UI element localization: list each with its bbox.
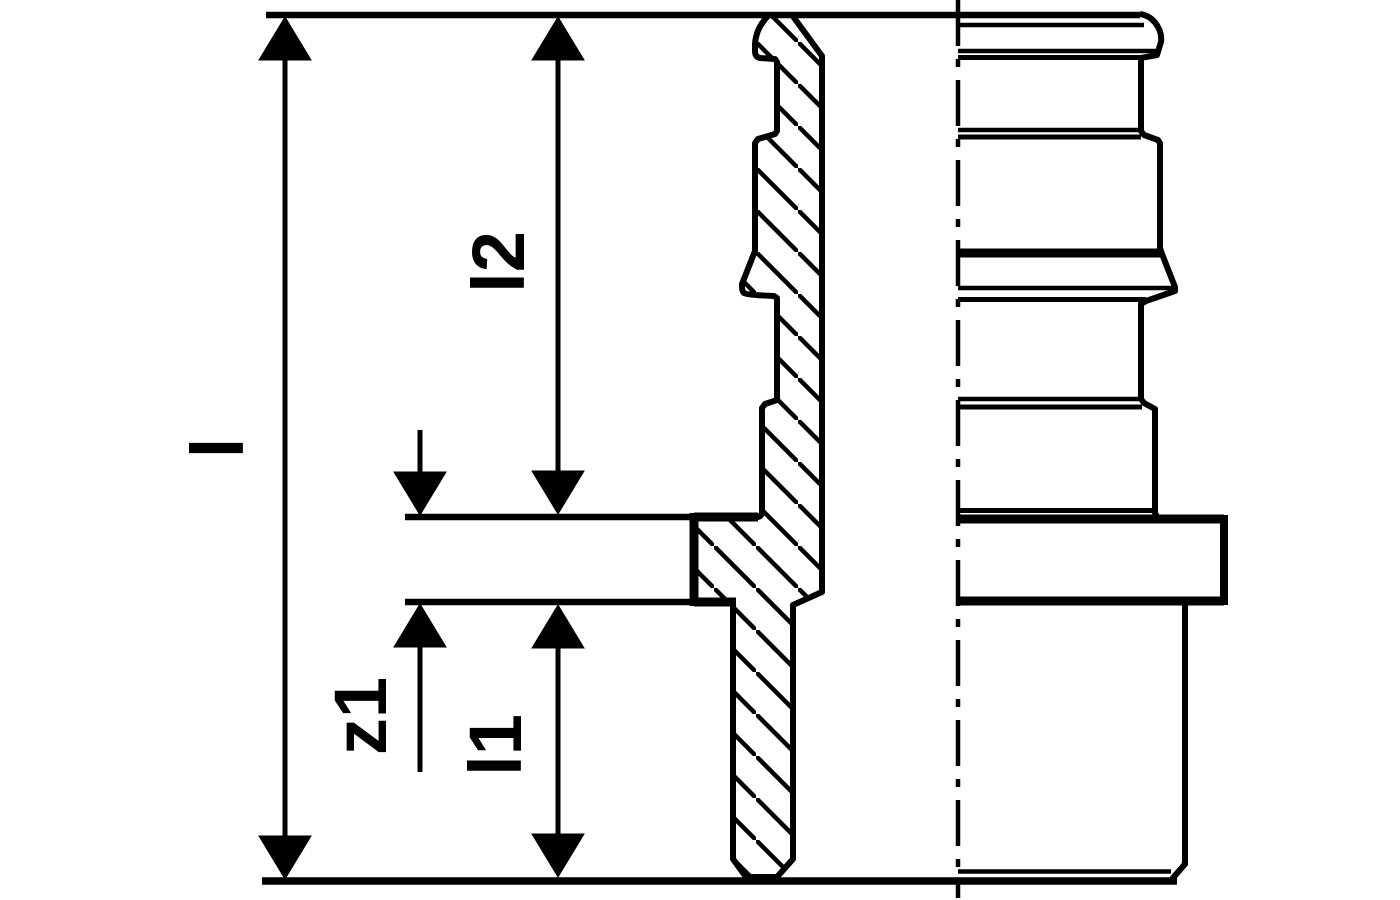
technical-drawing-canvas: l l2 z1 l1 — [0, 0, 1400, 900]
dim-l1-arrow-top — [532, 605, 584, 648]
spigot-outer-edge-right — [1172, 601, 1185, 879]
dim-label-l1: l1 — [459, 714, 533, 776]
external-profile-right — [1140, 14, 1175, 517]
external-view-right — [958, 14, 1224, 879]
dim-l1-arrow-bottom — [532, 834, 584, 877]
dim-label-l2: l2 — [462, 231, 536, 293]
dim-l-arrow-bottom — [259, 836, 311, 879]
dim-l2-arrow-top — [532, 17, 584, 60]
dim-l2-arrow-bottom — [532, 471, 584, 514]
dim-label-z1: z1 — [324, 677, 398, 755]
dim-l-arrow-top — [259, 17, 311, 60]
dim-z1-arrow-down — [394, 472, 446, 515]
dim-label-l: l — [181, 438, 255, 459]
dim-z1-arrow-up — [394, 604, 446, 647]
dimension-l — [259, 17, 311, 879]
sectioned-wall-profile — [694, 15, 822, 877]
dimension-l1 — [532, 605, 584, 877]
section-view-left — [694, 15, 822, 877]
